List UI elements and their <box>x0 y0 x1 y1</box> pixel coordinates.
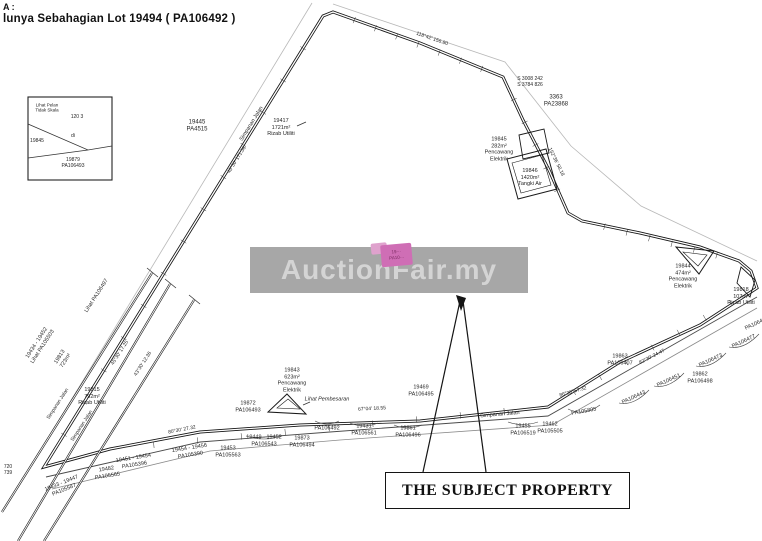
inset-box <box>28 97 112 180</box>
subject-property-box: THE SUBJECT PROPERTY <box>385 472 630 509</box>
highlight-plan-number: PA10··· <box>389 254 405 261</box>
subject-parcel-highlight: 19··· PA10··· <box>380 243 413 268</box>
plan-title: lunya Sebahagian Lot 19494 ( PA106492 ) <box>3 13 236 25</box>
subject-property-label: THE SUBJECT PROPERTY <box>402 482 613 500</box>
plan-title-prefix: A : <box>3 2 15 12</box>
left-roads <box>2 273 194 541</box>
survey-plan-page: A : lunya Sebahagian Lot 19494 ( PA10649… <box>0 0 762 541</box>
parcel-boundary <box>44 12 757 467</box>
subject-callout-wedge <box>423 295 486 472</box>
parcel-19843-pencawang <box>268 394 306 414</box>
